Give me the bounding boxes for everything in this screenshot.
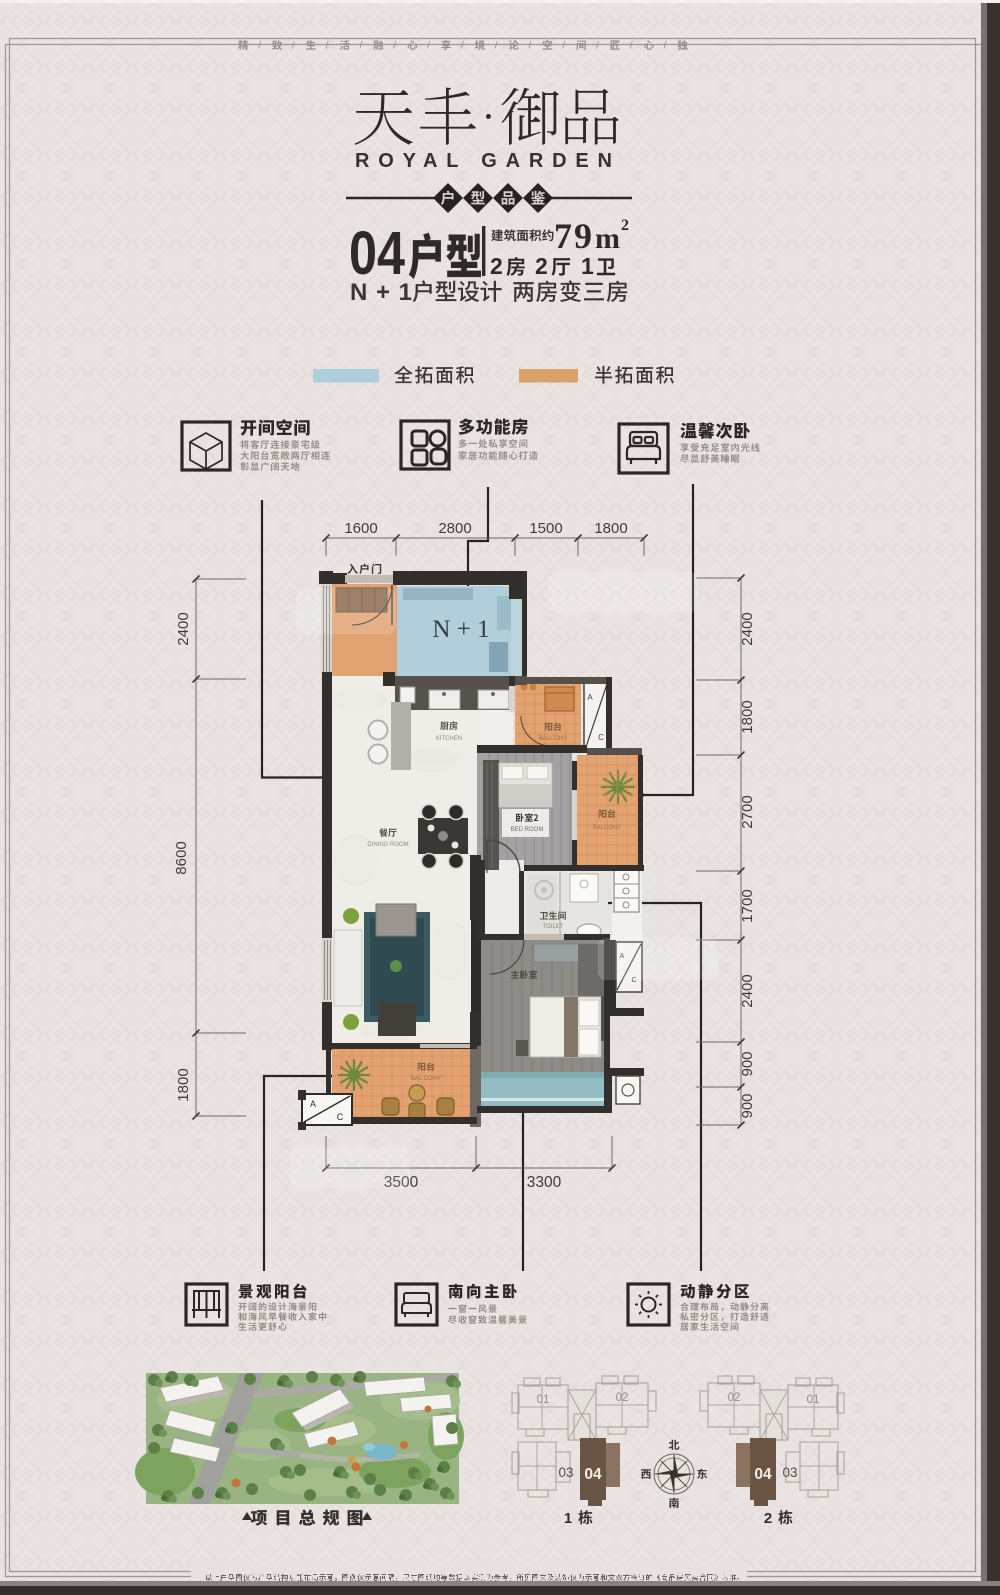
svg-text:2400: 2400 [739, 612, 756, 645]
svg-text:2400: 2400 [175, 612, 192, 645]
svg-text:BED ROOM: BED ROOM [511, 827, 544, 833]
svg-text:/: / [461, 41, 464, 52]
svg-text:3300: 3300 [527, 1174, 562, 1191]
svg-text:/: / [596, 41, 599, 52]
svg-text:C: C [337, 1112, 344, 1122]
svg-text:2: 2 [535, 253, 548, 279]
svg-text:04: 04 [349, 219, 405, 287]
svg-text:/: / [495, 41, 498, 52]
svg-text:/: / [360, 41, 363, 52]
svg-text:ROYAL GARDEN: ROYAL GARDEN [355, 150, 621, 172]
svg-text:2: 2 [621, 217, 629, 234]
svg-text:TOILET: TOILET [543, 924, 564, 930]
svg-text:/: / [630, 41, 633, 52]
svg-text:m: m [595, 222, 620, 255]
svg-text:2800: 2800 [438, 520, 471, 537]
svg-text:1800: 1800 [739, 700, 756, 733]
svg-text:/: / [393, 41, 396, 52]
svg-text:/: / [326, 41, 329, 52]
svg-text:01: 01 [537, 1394, 550, 1406]
svg-text:/: / [562, 41, 565, 52]
svg-text:2700: 2700 [739, 795, 756, 828]
svg-text:/: / [664, 41, 667, 52]
svg-text:N + 1: N + 1 [432, 616, 489, 643]
svg-text:1: 1 [564, 1510, 572, 1527]
svg-text:04: 04 [754, 1466, 772, 1483]
svg-text:1800: 1800 [175, 1068, 192, 1101]
svg-text:A: A [310, 1099, 316, 1109]
svg-text:1800: 1800 [594, 520, 627, 537]
svg-text:N + 1: N + 1 [350, 279, 413, 306]
svg-text:BAL CONY: BAL CONY [411, 1076, 441, 1082]
svg-text:1700: 1700 [739, 889, 756, 922]
svg-text:2400: 2400 [739, 974, 756, 1007]
svg-text:8600: 8600 [173, 841, 190, 874]
svg-text:2: 2 [490, 253, 503, 279]
svg-text:/: / [258, 41, 261, 52]
svg-text:BALCONY: BALCONY [539, 736, 568, 742]
svg-text:DINING ROOM: DINING ROOM [367, 842, 408, 848]
svg-text:04: 04 [584, 1466, 602, 1483]
svg-text:2: 2 [764, 1510, 772, 1527]
svg-text:03: 03 [782, 1465, 797, 1480]
svg-text:1500: 1500 [529, 520, 562, 537]
svg-text:02: 02 [616, 1392, 629, 1404]
svg-text:C: C [598, 733, 604, 742]
svg-text:1600: 1600 [344, 520, 377, 537]
svg-text:01: 01 [807, 1394, 820, 1406]
svg-text:/: / [292, 41, 295, 52]
svg-text:BALCONY: BALCONY [593, 825, 622, 831]
svg-text:/: / [427, 41, 430, 52]
svg-text:BED ROOM: BED ROOM [508, 984, 541, 990]
svg-text:79: 79 [554, 216, 594, 256]
svg-text:03: 03 [558, 1465, 573, 1480]
svg-text:/: / [529, 41, 532, 52]
svg-text:KITCHEN: KITCHEN [436, 736, 462, 742]
svg-text:02: 02 [728, 1392, 741, 1404]
svg-text:A: A [587, 693, 593, 702]
svg-text:900: 900 [739, 1093, 756, 1118]
svg-text:1: 1 [581, 253, 594, 279]
svg-text:900: 900 [739, 1051, 756, 1076]
